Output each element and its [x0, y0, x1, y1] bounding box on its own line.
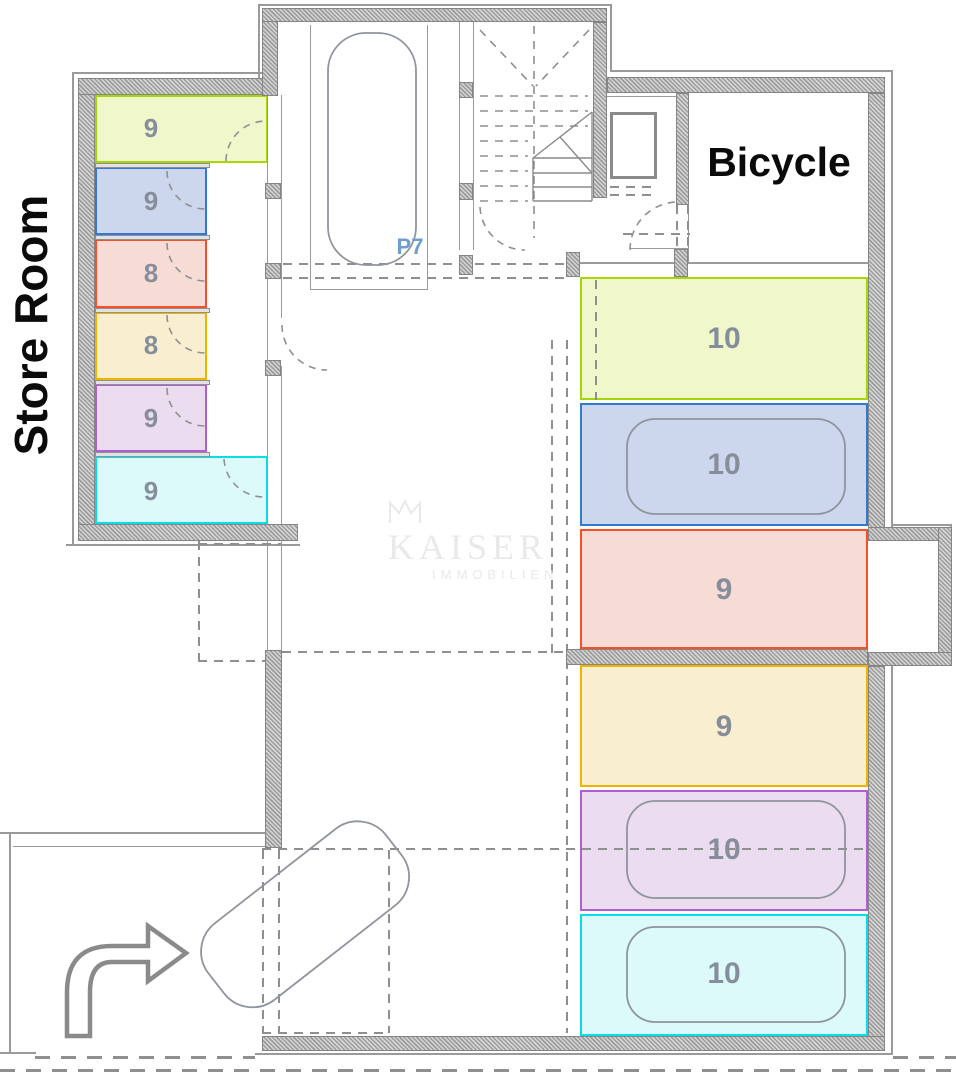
door-arc: [630, 202, 678, 250]
parking-spot-6-area: 10: [694, 959, 754, 989]
dashed-line: [566, 340, 568, 1033]
wall-segment: [566, 649, 868, 665]
wall-segment: [78, 78, 95, 541]
bicycle-room-title: Bicycle: [690, 139, 868, 186]
dashed-line: [610, 186, 658, 188]
dashed-line: [262, 1032, 390, 1034]
floor-plan: 9 9 8 8 9 9 10 10 9 9 10 10: [0, 0, 956, 1080]
wall-segment: [674, 249, 688, 277]
dashed-line: [282, 651, 566, 653]
door-arc: [282, 325, 327, 370]
line: [267, 541, 268, 650]
line: [459, 22, 460, 250]
dashed-line: [262, 850, 264, 1033]
wall-segment: [459, 255, 473, 275]
crown-icon: [388, 498, 422, 524]
dashed-line: [388, 850, 390, 1033]
dashed-line: [283, 277, 567, 279]
store-room-2-area: 9: [121, 188, 181, 214]
dashed-line: [262, 848, 868, 850]
dashed-line: [610, 194, 658, 196]
dashed-line: [278, 850, 280, 1033]
line: [9, 832, 11, 1052]
dashed-line: [687, 205, 689, 248]
wall-segment: [265, 360, 281, 376]
dashed-line: [198, 543, 281, 545]
parking-spot-3-area: 9: [694, 575, 754, 605]
line: [891, 664, 893, 1053]
dashed-line: [676, 205, 678, 248]
dashed-line: [551, 340, 553, 655]
line: [610, 70, 893, 72]
line: [72, 72, 74, 546]
wall-segment: [868, 652, 952, 666]
line: [281, 366, 282, 524]
watermark-brand: KAISER: [388, 529, 588, 565]
wall-segment: [262, 1036, 885, 1051]
line: [258, 4, 260, 78]
parking-spot-4-area: 9: [694, 712, 754, 742]
line: [72, 72, 262, 74]
line: [595, 96, 676, 97]
wall-segment: [459, 183, 473, 200]
line: [310, 25, 311, 290]
line: [258, 4, 612, 6]
store-room-3-area: 8: [121, 260, 181, 286]
line: [891, 524, 952, 526]
line: [610, 4, 612, 72]
watermark-subtitle: IMMOBILIEN: [432, 567, 588, 582]
wall-segment: [265, 183, 281, 199]
partition-wall: [95, 235, 210, 240]
wall-segment: [262, 8, 607, 22]
store-room-4-area: 8: [121, 332, 181, 358]
elevator-shaft: [610, 112, 657, 179]
line: [267, 95, 268, 524]
line: [473, 22, 474, 250]
line: [568, 262, 868, 264]
entrance-direction-arrow: [67, 926, 186, 1036]
store-room-6-area: 9: [121, 478, 181, 504]
line: [891, 70, 893, 527]
parking-spot-1-area: 10: [694, 324, 754, 354]
wall-segment: [78, 524, 298, 541]
store-room-5-area: 9: [121, 405, 181, 431]
line: [13, 846, 268, 847]
line: [0, 1052, 36, 1054]
partition-wall: [95, 308, 210, 313]
wall-segment: [593, 22, 607, 198]
wall-segment: [566, 252, 580, 277]
wall-segment: [868, 666, 885, 1050]
stair-steps: [533, 112, 592, 201]
wall-segment: [676, 93, 689, 205]
dashed-line: [283, 263, 570, 265]
store-room-1-area: 9: [121, 115, 181, 141]
partition-wall: [95, 163, 210, 168]
watermark: KAISER IMMOBILIEN: [388, 498, 588, 582]
dashed-line: [595, 280, 597, 400]
parking-spot-5-area: 10: [694, 835, 754, 865]
dashed-line: [623, 233, 690, 235]
car-outline-p7: [328, 33, 416, 265]
dashed-line: [893, 1056, 956, 1059]
wall-segment: [607, 77, 885, 93]
dashed-line: [35, 1056, 255, 1059]
line: [0, 832, 268, 834]
parking-spot-p7-label: P7: [388, 234, 432, 260]
line: [281, 95, 282, 318]
line: [281, 541, 282, 650]
wall-segment: [868, 93, 885, 530]
store-room-title: Store Room: [4, 180, 62, 470]
line: [255, 1053, 893, 1055]
door-arc: [480, 207, 525, 250]
dashed-line: [198, 541, 200, 662]
wall-segment: [459, 82, 473, 98]
stair-direction-dashes: [480, 26, 589, 238]
partition-wall: [95, 380, 210, 385]
parking-spot-2-area: 10: [694, 450, 754, 480]
line: [310, 289, 428, 290]
wall-segment: [938, 527, 952, 666]
wall-segment: [265, 263, 281, 279]
dashed-line: [0, 1069, 956, 1072]
wall-segment: [265, 650, 282, 848]
partition-wall: [95, 452, 210, 457]
wall-segment: [78, 78, 268, 95]
